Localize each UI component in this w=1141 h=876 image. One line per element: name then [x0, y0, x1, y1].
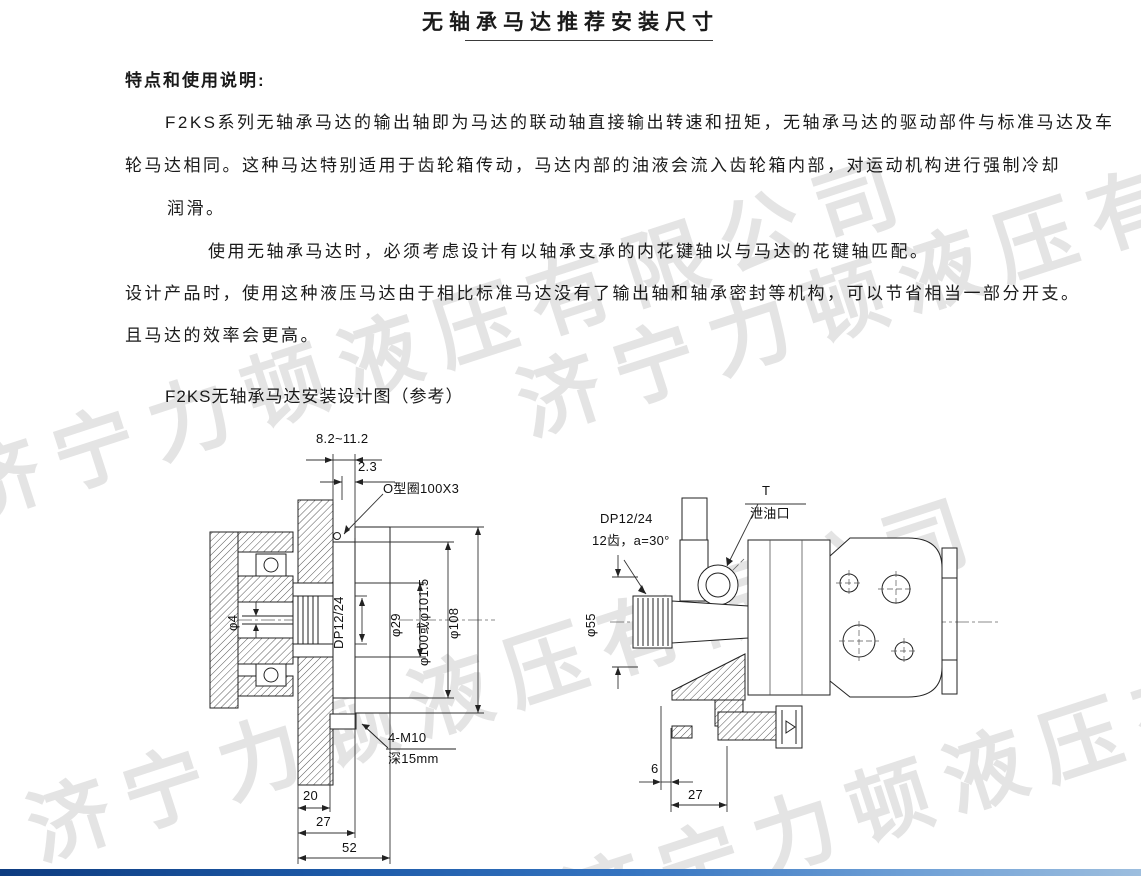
body-line: 且马达的效率会更高。 [125, 321, 320, 346]
page-title: 无轴承马达推荐安装尺寸 [0, 6, 1141, 36]
dim-label-52: 52 [342, 841, 357, 855]
dim-label-dia4: φ4 [226, 615, 240, 631]
motor-body [748, 538, 957, 697]
body-line: 润滑。 [167, 194, 226, 219]
dim-label-dia29: φ29 [389, 613, 403, 637]
dim-label-20: 20 [303, 789, 318, 803]
right-side-diagram: DP12/24 12齿，a=30° T 泄油口 φ55 6 27 [590, 460, 1010, 830]
mounting-bolt [718, 706, 802, 748]
tap-hole-label-line1: 4-M10 [388, 731, 426, 745]
title-underline [465, 40, 713, 41]
drain-port-label: 泄油口 [750, 507, 790, 521]
dim-label-27: 27 [688, 788, 703, 802]
body-line: 设计产品时，使用这种液压马达由于相比标准马达没有了输出轴和轴承密封等机构，可以节… [125, 279, 1081, 304]
spline-spec-label-line2: 12齿，a=30° [592, 534, 670, 548]
dim-label-top-gap: 2.3 [358, 460, 377, 474]
port-code-label: T [762, 484, 770, 498]
dim-label-dia55: φ55 [584, 613, 598, 637]
spline-shaft [633, 596, 748, 648]
tap-hole-label-line2: 深15mm [388, 752, 439, 766]
dim-label-27: 27 [316, 815, 331, 829]
dim-label-6: 6 [651, 762, 659, 776]
catalog-page: 济宁力顿液压有限公司 济宁力顿液压有限公司 济宁力顿液压有限公司 济宁力顿液压有… [0, 0, 1141, 876]
spline-spec-label-line1: DP12/24 [600, 512, 653, 526]
body-line: F2KS系列无轴承马达的输出轴即为马达的联动轴直接输出转速和扭矩，无轴承马达的驱… [165, 108, 1115, 133]
body-line: 轮马达相同。这种马达特别适用于齿轮箱传动，马达内部的油液会流入齿轮箱内部，对运动… [125, 151, 1061, 176]
dim-label-spline: DP12/24 [332, 596, 346, 649]
dim-label-dia100: φ100或φ101.5 [417, 579, 431, 666]
figure-caption: F2KS无轴承马达安装设计图（参考） [165, 382, 464, 407]
dim-label-dia108: φ108 [447, 608, 461, 639]
o-ring [334, 533, 341, 540]
left-section-diagram: 8.2~11.2 2.3 O型圈100X3 φ4 DP12/24 φ29 φ10… [190, 420, 510, 876]
footer-accent-bar [0, 869, 1141, 876]
section-heading: 特点和使用说明: [125, 66, 266, 91]
left-section-drawing [190, 420, 510, 876]
o-ring-label: O型圈100X3 [383, 482, 459, 496]
body-line: 使用无轴承马达时，必须考虑设计有以轴承支承的内花键轴以与马达的花键轴匹配。 [208, 237, 930, 262]
drain-port [698, 565, 738, 605]
dim-label-top-range: 8.2~11.2 [316, 432, 368, 446]
